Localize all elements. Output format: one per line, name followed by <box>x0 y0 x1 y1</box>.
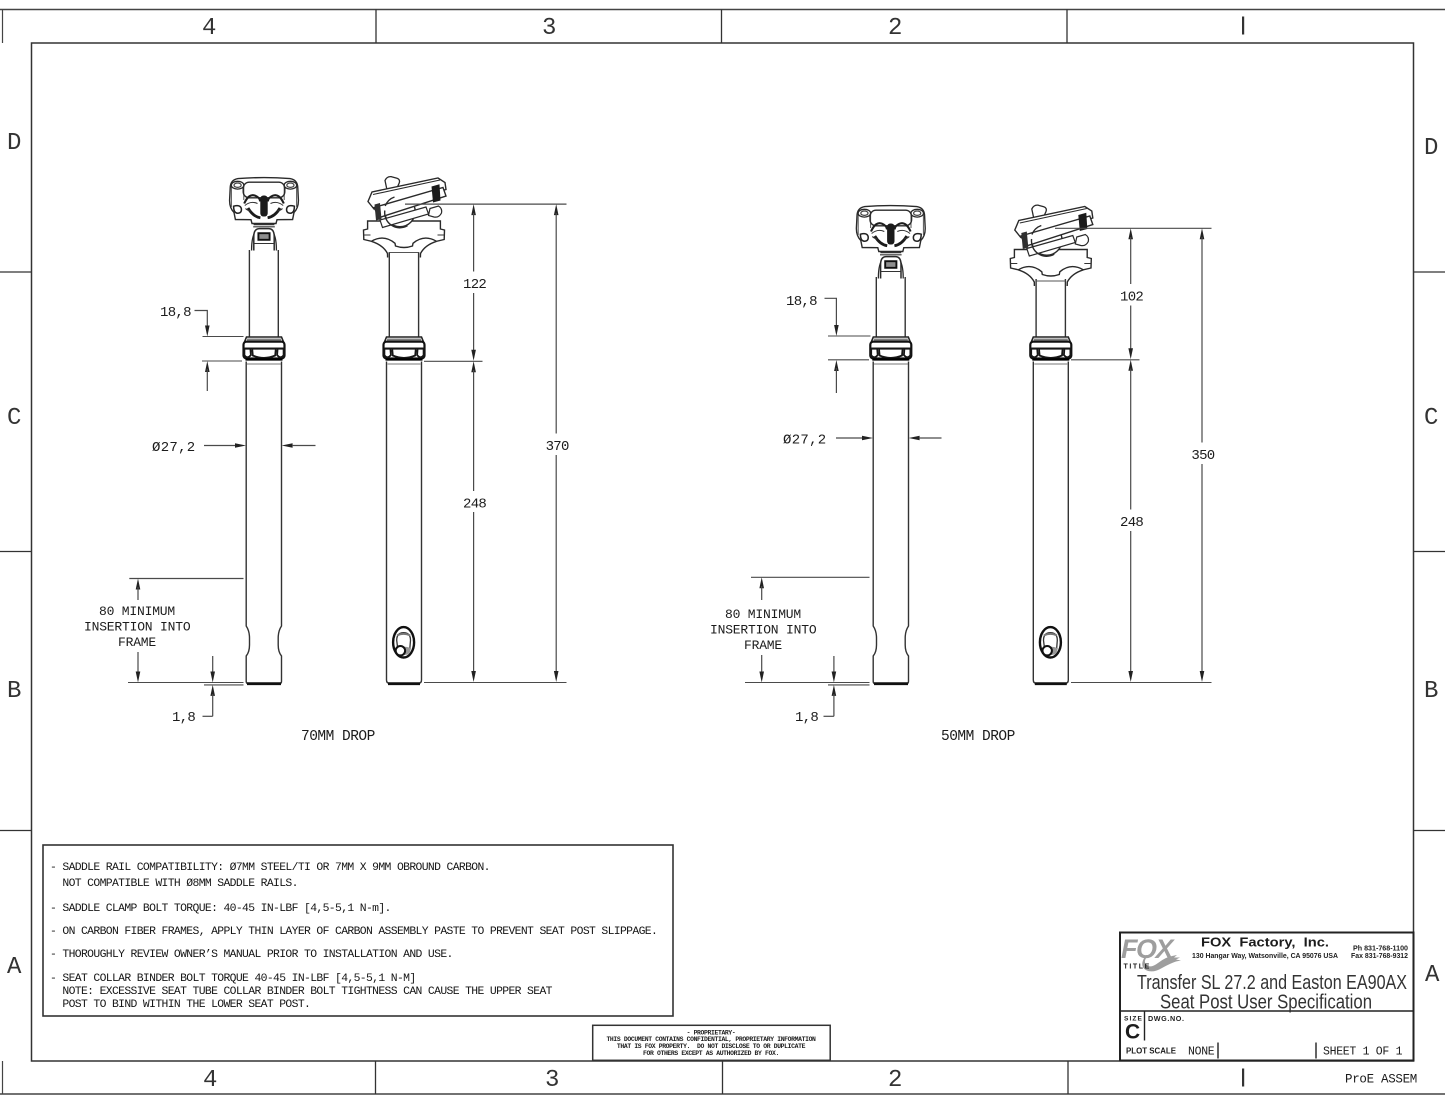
svg-text:122: 122 <box>463 277 486 293</box>
svg-text:ProE ASSEM: ProE ASSEM <box>1345 1073 1417 1087</box>
svg-text:- THOROUGHLY REVIEW OWNER’S MA: - THOROUGHLY REVIEW OWNER’S MANUAL PRIOR… <box>50 949 453 961</box>
svg-text:INSERTION INTO: INSERTION INTO <box>710 623 817 638</box>
svg-text:C: C <box>7 405 21 432</box>
svg-text:350: 350 <box>1191 448 1214 464</box>
svg-text:FRAME: FRAME <box>744 638 782 653</box>
svg-text:TITLE: TITLE <box>1124 964 1151 971</box>
svg-text:SHEET 1 OF 1: SHEET 1 OF 1 <box>1323 1046 1403 1059</box>
svg-text:4: 4 <box>203 1067 217 1094</box>
svg-text:80 MINIMUM: 80 MINIMUM <box>99 604 175 619</box>
svg-text:Fax 831-768-9312: Fax 831-768-9312 <box>1351 951 1408 960</box>
svg-text:A: A <box>7 954 22 981</box>
svg-text:C: C <box>1125 1021 1140 1044</box>
svg-text:70MM DROP: 70MM DROP <box>301 729 375 745</box>
svg-text:B: B <box>1424 678 1438 705</box>
svg-text:Seat Post User Specification: Seat Post User Specification <box>1160 991 1372 1014</box>
svg-text:- ON CARBON FIBER FRAMES, APPL: - ON CARBON FIBER FRAMES, APPLY THIN LAY… <box>50 926 657 938</box>
svg-text:A: A <box>1425 962 1440 989</box>
svg-text:FOX Factory, Inc.: FOX Factory, Inc. <box>1201 936 1329 950</box>
svg-text:102: 102 <box>1120 290 1143 306</box>
svg-text:2: 2 <box>888 15 902 42</box>
svg-text:18,8: 18,8 <box>786 294 817 310</box>
svg-text:130 Hangar Way, Watsonville, C: 130 Hangar Way, Watsonville, CA 95076 US… <box>1192 951 1339 960</box>
svg-text:3: 3 <box>542 15 556 42</box>
svg-text:248: 248 <box>1120 515 1143 531</box>
svg-text:248: 248 <box>463 497 486 513</box>
svg-text:NOTE: EXCESSIVE SEAT TUBE COLL: NOTE: EXCESSIVE SEAT TUBE COLLAR BINDER … <box>50 986 553 998</box>
svg-text:FRAME: FRAME <box>118 635 156 650</box>
svg-text:80 MINIMUM: 80 MINIMUM <box>725 607 801 622</box>
svg-text:3: 3 <box>545 1067 559 1094</box>
svg-text:- SEAT COLLAR BINDER BOLT TORQ: - SEAT COLLAR BINDER BOLT TORQUE 40-45 I… <box>50 973 416 985</box>
svg-text:C: C <box>1424 405 1438 432</box>
svg-text:NONE: NONE <box>1188 1046 1215 1059</box>
svg-text:D: D <box>1424 135 1438 162</box>
svg-text:D: D <box>7 130 21 157</box>
svg-text:INSERTION INTO: INSERTION INTO <box>84 620 191 635</box>
svg-text:- SADDLE CLAMP BOLT TORQUE: 40: - SADDLE CLAMP BOLT TORQUE: 40-45 IN-LBF… <box>50 903 391 915</box>
svg-text:4: 4 <box>202 15 216 42</box>
svg-text:18,8: 18,8 <box>160 305 191 321</box>
svg-text:1,8: 1,8 <box>172 710 195 726</box>
svg-text:B: B <box>7 678 21 705</box>
svg-text:FOR OTHERS EXCEPT AS AUTHORIZE: FOR OTHERS EXCEPT AS AUTHORIZED BY FOX. <box>643 1050 779 1057</box>
svg-text:DWG.NO.: DWG.NO. <box>1148 1014 1185 1023</box>
svg-text:Ø27,2: Ø27,2 <box>152 440 196 456</box>
svg-text:PLOT SCALE: PLOT SCALE <box>1126 1047 1177 1056</box>
svg-text:2: 2 <box>888 1067 902 1094</box>
svg-text:POST TO BIND WITHIN THE LOWER: POST TO BIND WITHIN THE LOWER SEAT POST. <box>50 999 310 1011</box>
svg-text:50MM DROP: 50MM DROP <box>941 729 1015 745</box>
svg-text:Ø27,2: Ø27,2 <box>783 433 827 449</box>
svg-text:370: 370 <box>546 439 569 455</box>
svg-text:NOT COMPATIBLE WITH Ø8MM SADDL: NOT COMPATIBLE WITH Ø8MM SADDLE RAILS. <box>50 878 298 890</box>
svg-text:1,8: 1,8 <box>795 710 818 726</box>
svg-text:- SADDLE RAIL COMPATIBILITY: Ø: - SADDLE RAIL COMPATIBILITY: Ø7MM STEEL/… <box>50 862 490 874</box>
